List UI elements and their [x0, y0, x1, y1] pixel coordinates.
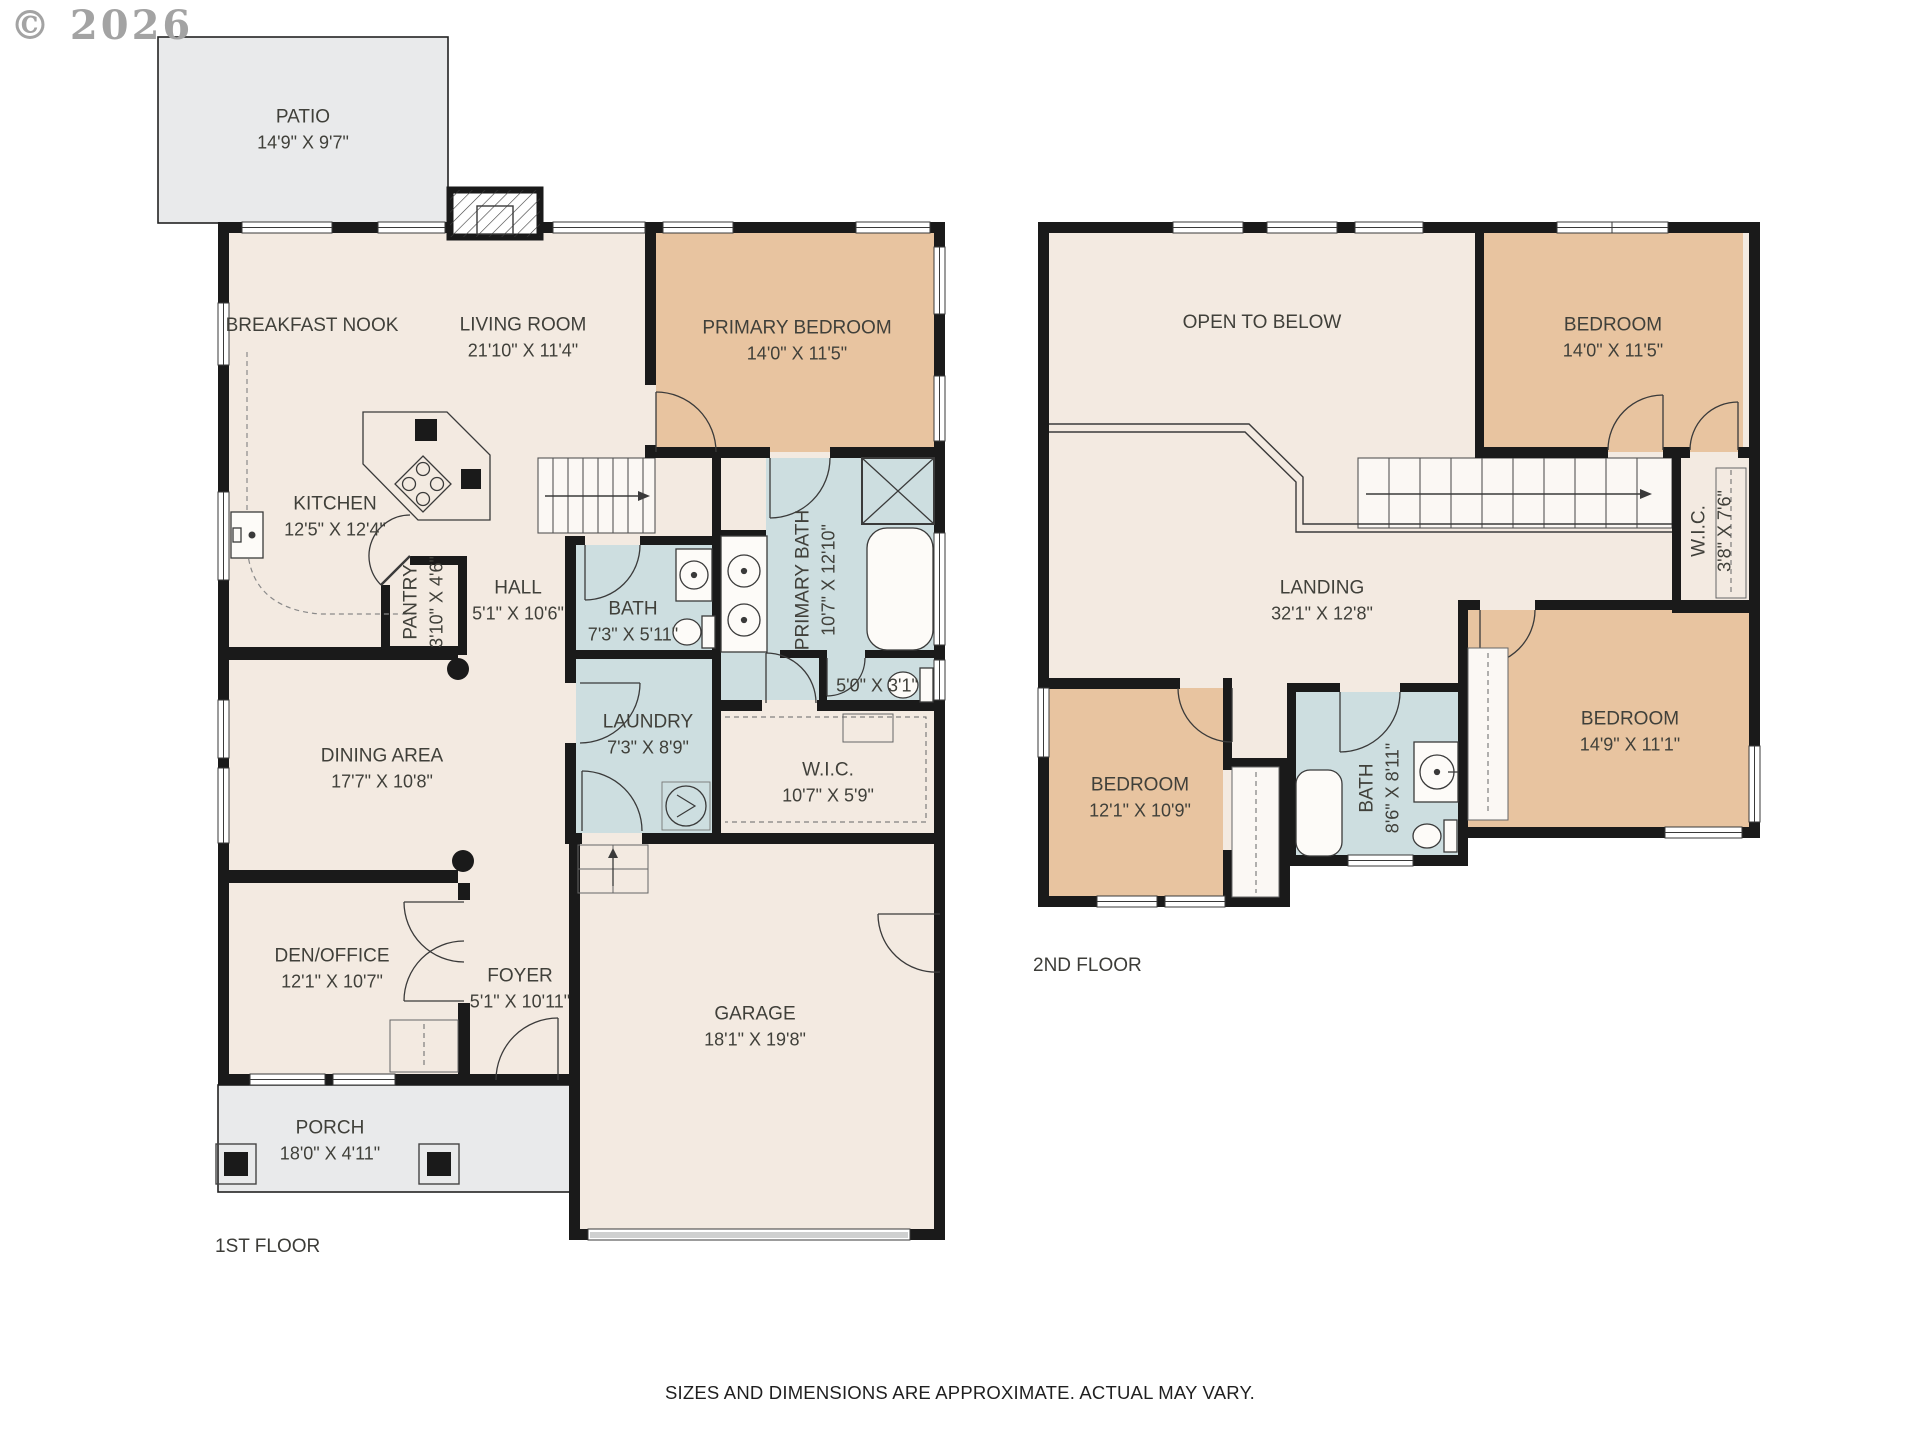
- room-dims: 18'0" X 4'11": [280, 1142, 380, 1167]
- room-dims: 7'3" X 8'9": [603, 736, 693, 761]
- room-dims: 14'0" X 11'5": [702, 342, 891, 367]
- disclaimer-text: SIZES AND DIMENSIONS ARE APPROXIMATE. AC…: [0, 1382, 1920, 1404]
- tub: [1296, 770, 1342, 856]
- room-dims: 12'1" X 10'7": [274, 970, 389, 995]
- room-label-dining-area: DINING AREA 17'7" X 10'8": [321, 743, 443, 794]
- room-label-porch: PORCH 18'0" X 4'11": [280, 1115, 380, 1166]
- room-label-patio: PATIO 14'9" X 9'7": [257, 104, 349, 155]
- room-name: DINING AREA: [321, 743, 443, 769]
- toilet-bowl: [1413, 824, 1441, 848]
- room-dims: 7'3" X 5'11": [588, 623, 678, 648]
- room-label-landing: LANDING 32'1" X 12'8": [1271, 575, 1373, 626]
- toilet-tank: [702, 616, 715, 648]
- room-name: W.I.C.: [782, 757, 874, 783]
- structural-post: [447, 658, 469, 680]
- room-dims: 14'9" X 9'7": [257, 131, 349, 156]
- toilet-tank: [920, 668, 933, 702]
- room-label-kitchen: KITCHEN 12'5" X 12'4": [284, 491, 386, 542]
- fireplace: [450, 190, 540, 237]
- room-dims: 10'7" X 5'9": [782, 784, 874, 809]
- room-dims: 5'1" X 10'6": [472, 602, 564, 627]
- room-label-primary-bath: PRIMARY BATH 10'7" X 12'10": [790, 510, 841, 650]
- room-label-breakfast-nook: BREAKFAST NOOK: [226, 313, 399, 339]
- room-name: PRIMARY BEDROOM: [702, 315, 891, 341]
- room-name: PATIO: [257, 104, 349, 130]
- room-name: PORCH: [280, 1115, 380, 1141]
- room-name: PANTRY: [398, 556, 424, 648]
- room-dims: 8'6" X 8'11": [1381, 743, 1406, 833]
- room-name: BATH: [1354, 743, 1380, 833]
- porch-area: [218, 1085, 570, 1192]
- room-label-den-office: DEN/OFFICE 12'1" X 10'7": [274, 943, 389, 994]
- room-name: DEN/OFFICE: [274, 943, 389, 969]
- room-dims: 21'10" X 11'4": [460, 339, 587, 364]
- room-name: BATH: [588, 596, 678, 622]
- room-name: BEDROOM: [1089, 772, 1191, 798]
- room-name: KITCHEN: [284, 491, 386, 517]
- closet-fill: [721, 452, 766, 530]
- room-name: LAUNDRY: [603, 709, 693, 735]
- room-name: GARAGE: [704, 1001, 806, 1027]
- structural-post: [452, 850, 474, 872]
- room-label-toilet-room: 5'0" X 3'1": [836, 674, 918, 699]
- room-name: LANDING: [1271, 575, 1373, 601]
- room-label-foyer: FOYER 5'1" X 10'11": [470, 963, 570, 1014]
- room-dims: 12'5" X 12'4": [284, 518, 386, 543]
- floor2-title: 2ND FLOOR: [1033, 955, 1142, 977]
- room-label-wic-first: W.I.C. 10'7" X 5'9": [782, 757, 874, 808]
- room-label-bath2: BATH 8'6" X 8'11": [1354, 743, 1405, 833]
- room-label-living-room: LIVING ROOM 21'10" X 11'4": [460, 312, 587, 363]
- copyright-watermark: © 2026: [10, 2, 193, 49]
- room-dims: 10'7" X 12'10": [817, 510, 842, 650]
- floorplan-page: © 2026 PATIO 14'9" X 9'7" BREAKFAST NOOK…: [0, 0, 1920, 1440]
- room-dims: 3'8" X 7'6": [1713, 490, 1738, 572]
- room-name: BEDROOM: [1563, 312, 1663, 338]
- room-label-pantry: PANTRY 3'10" X 4'6": [398, 556, 449, 648]
- room-dims: 14'0" X 11'5": [1563, 339, 1663, 364]
- kitchen-sink: [231, 512, 263, 558]
- room-dims: 5'1" X 10'11": [470, 990, 570, 1015]
- toilet-tank: [1444, 820, 1457, 852]
- room-label-hall: HALL 5'1" X 10'6": [472, 575, 564, 626]
- room-dims: 18'1" X 19'8": [704, 1028, 806, 1053]
- room-label-bedroom4: BEDROOM 14'9" X 11'1": [1580, 706, 1680, 757]
- room-label-primary-bedroom: PRIMARY BEDROOM 14'0" X 11'5": [702, 315, 891, 366]
- room-dims: 3'10" X 4'6": [425, 556, 450, 648]
- room-name: OPEN TO BELOW: [1183, 310, 1342, 336]
- room-name: HALL: [472, 575, 564, 601]
- room-dims: 32'1" X 12'8": [1271, 602, 1373, 627]
- room-label-wic-second: W.I.C. 3'8" X 7'6": [1686, 490, 1737, 572]
- room-name: W.I.C.: [1686, 490, 1712, 572]
- floor1-title: 1ST FLOOR: [215, 1236, 320, 1258]
- tub: [867, 528, 933, 650]
- room-dims: 12'1" X 10'9": [1089, 799, 1191, 824]
- kitchen-sink-island: [415, 419, 437, 441]
- stairs-first-floor: [538, 458, 655, 533]
- room-name: BREAKFAST NOOK: [226, 313, 399, 339]
- room-label-bedroom2: BEDROOM 14'0" X 11'5": [1563, 312, 1663, 363]
- room-label-bedroom3: BEDROOM 12'1" X 10'9": [1089, 772, 1191, 823]
- room-dims: 14'9" X 11'1": [1580, 733, 1680, 758]
- room-name: FOYER: [470, 963, 570, 989]
- room-name: BEDROOM: [1580, 706, 1680, 732]
- stairs-second-floor: [1358, 458, 1672, 528]
- room-label-bath: BATH 7'3" X 5'11": [588, 596, 678, 647]
- room-label-laundry: LAUNDRY 7'3" X 8'9": [603, 709, 693, 760]
- room-label-garage: GARAGE 18'1" X 19'8": [704, 1001, 806, 1052]
- room-dims: 17'7" X 10'8": [321, 770, 443, 795]
- room-dims: 5'0" X 3'1": [836, 674, 918, 699]
- room-name: LIVING ROOM: [460, 312, 587, 338]
- room-label-open-to-below: OPEN TO BELOW: [1183, 310, 1342, 336]
- room-name: PRIMARY BATH: [790, 510, 816, 650]
